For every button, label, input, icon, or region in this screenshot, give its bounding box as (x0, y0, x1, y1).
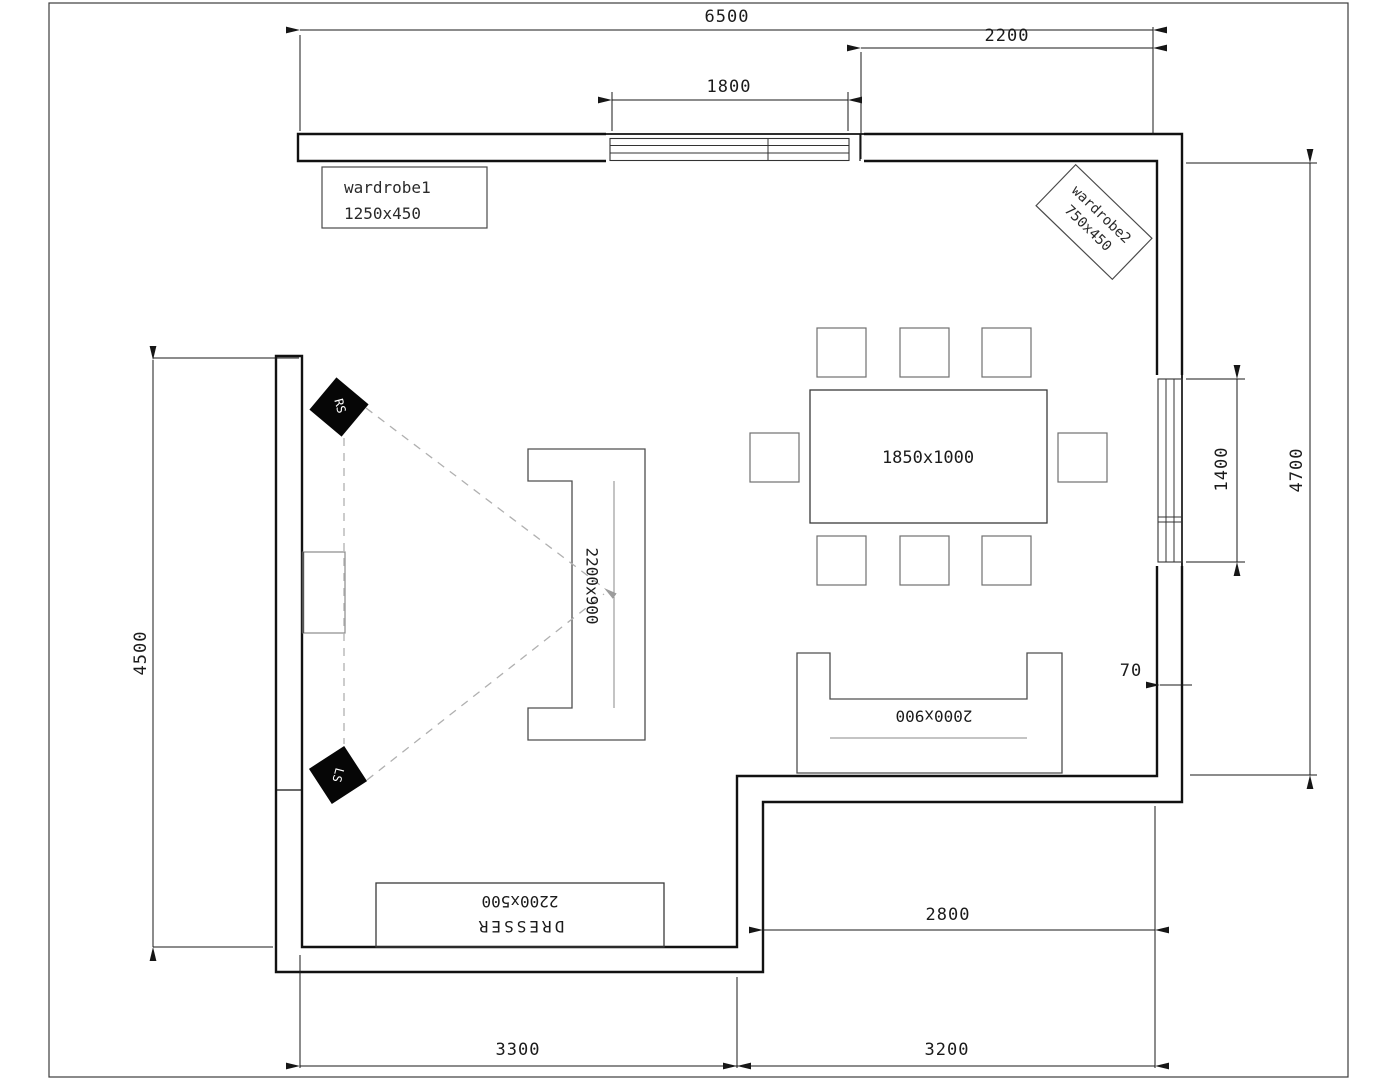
extension-lines (153, 27, 1317, 1068)
sofa-left-size-label: 2200x900 (583, 547, 602, 624)
floorplan-canvas: 6500 2200 1800 1400 4700 70 4500 2800 33… (0, 0, 1398, 1080)
speaker-aim-lines (344, 408, 604, 780)
dim-bottom-left: 3300 (496, 1040, 541, 1060)
chair (1058, 433, 1107, 482)
chair (900, 328, 949, 377)
wardrobe1-size: 1250x450 (344, 201, 431, 227)
sofa-bottom-size-label: 2000x900 (895, 707, 972, 726)
dresser-name: DRESSER (476, 914, 564, 939)
dim-alcove: 2800 (926, 905, 971, 925)
tv-cabinet-outline (303, 552, 345, 633)
dim-left-overall: 4500 (131, 631, 151, 676)
chair (817, 536, 866, 585)
dim-top-right: 2200 (985, 26, 1030, 46)
window-top (606, 131, 864, 164)
chair (900, 536, 949, 585)
floorplan-drawing (0, 0, 1398, 1080)
dimension-lines (153, 30, 1310, 1066)
sheet-border (49, 3, 1348, 1077)
dim-bottom-right: 3200 (925, 1040, 970, 1060)
dim-window-right: 1400 (1212, 447, 1232, 492)
chair (982, 536, 1031, 585)
wardrobe1-label: wardrobe1 1250x450 (344, 175, 431, 227)
table-size-label: 1850x1000 (882, 448, 974, 468)
dim-top-overall: 6500 (705, 7, 750, 27)
dim-window-top: 1800 (707, 77, 752, 97)
dim-offset-70: 70 (1120, 661, 1142, 681)
chair (982, 328, 1031, 377)
dim-right-overall: 4700 (1287, 448, 1307, 493)
wall-outline (276, 134, 1182, 972)
chair (750, 433, 799, 482)
window-right (1154, 375, 1186, 566)
wardrobe1-name: wardrobe1 (344, 175, 431, 201)
chair (817, 328, 866, 377)
dresser-size: 2200x500 (476, 889, 564, 914)
dresser-label: DRESSER 2200x500 (476, 889, 564, 939)
